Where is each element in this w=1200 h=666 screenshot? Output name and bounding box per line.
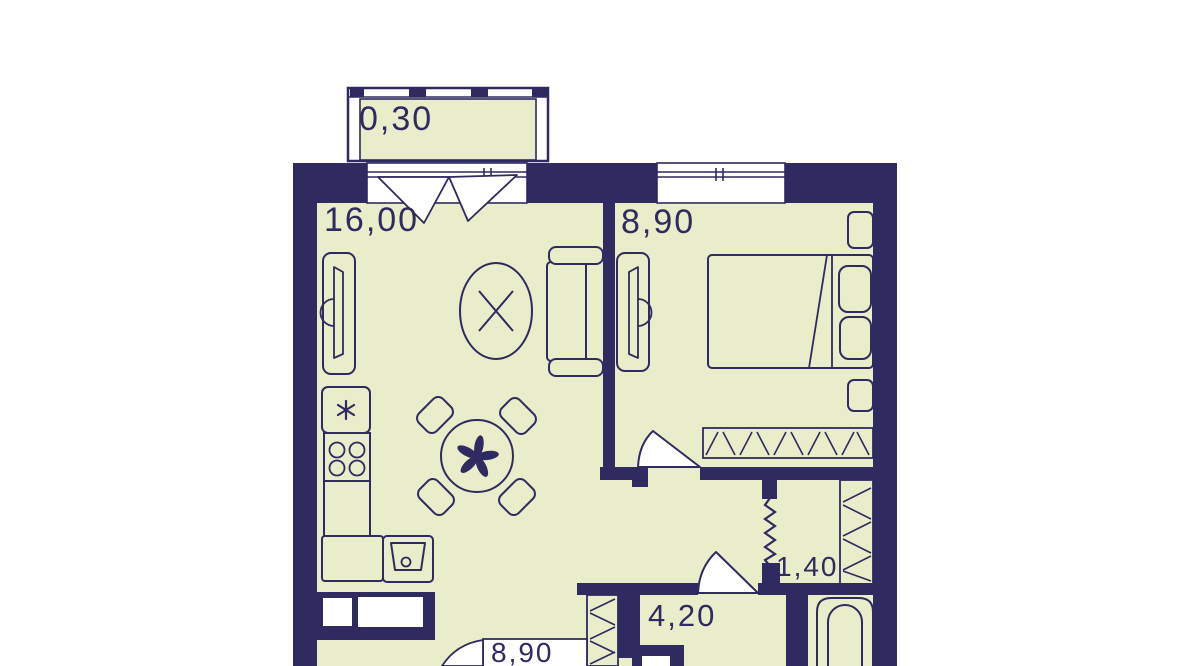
room-label-adjacent: 8,90	[491, 637, 554, 666]
sink-icon	[383, 536, 433, 582]
railing-post	[532, 87, 547, 97]
kitchen-corner-cabinet	[322, 536, 383, 581]
wall-stub-top	[762, 480, 777, 499]
bedroom-window	[657, 163, 785, 203]
pillow-icon	[840, 317, 871, 359]
wall-bathroom	[786, 595, 808, 666]
shaft-opening	[323, 598, 352, 626]
floor-plan-canvas: 0,30 16,00 8,90 1,40 4,20 8,90	[0, 0, 1200, 666]
room-label-niche: 1,40	[776, 551, 839, 582]
wall-bedroom-bottom-right	[700, 467, 897, 480]
door-jamb	[632, 467, 648, 487]
fridge-icon	[322, 387, 370, 433]
tv-stand-icon	[617, 253, 652, 371]
pillow-icon	[839, 266, 871, 312]
floor-plan-drawing: 0,30 16,00 8,90 1,40 4,20 8,90	[0, 0, 1200, 666]
room-label-hallway: 4,20	[648, 598, 716, 633]
wall-hallway-top-left	[577, 583, 698, 595]
wall-left	[293, 163, 317, 666]
hallway-shaft	[632, 645, 684, 666]
shaft-opening	[642, 656, 670, 666]
railing-post	[471, 87, 488, 97]
railing-post	[409, 87, 426, 97]
shaft-opening	[358, 597, 423, 627]
kitchen-shaft	[317, 592, 435, 640]
wall-bedroom-bottom-left	[600, 467, 637, 480]
nightstand-icon	[848, 212, 873, 248]
bed-icon	[708, 255, 873, 368]
room-label-living: 16,00	[324, 201, 419, 239]
bathtub-icon	[817, 598, 873, 666]
sofa-icon	[547, 247, 604, 376]
tv-stand-icon	[321, 253, 356, 374]
wall-hallway-top-right	[758, 583, 897, 595]
nightstand-icon	[848, 380, 873, 411]
railing-post	[350, 87, 364, 97]
stove-icon	[324, 433, 370, 481]
room-label-balcony: 0,30	[359, 100, 433, 138]
room-label-bedroom: 8,90	[621, 203, 695, 241]
kitchen-counter	[324, 481, 370, 536]
